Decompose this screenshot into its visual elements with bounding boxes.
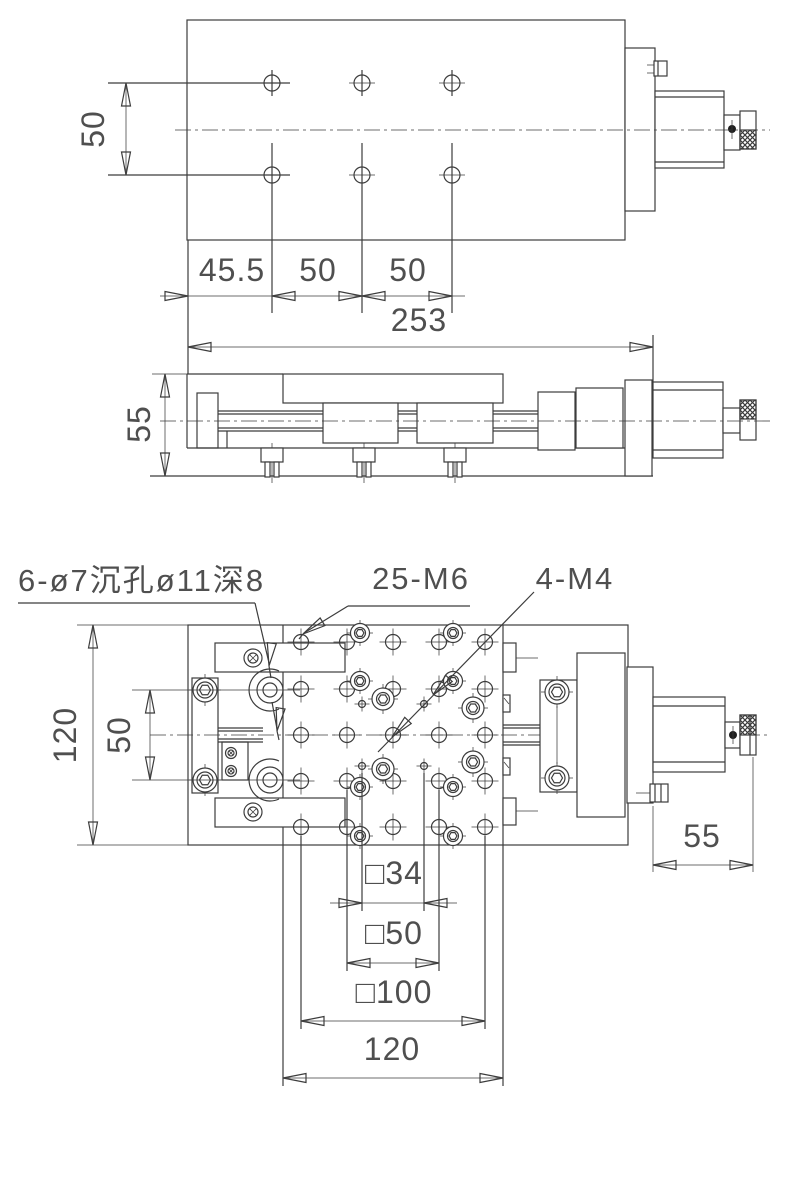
knurl-texture xyxy=(740,130,756,149)
micrometer-mount xyxy=(625,380,652,476)
right-tab-bottom xyxy=(503,798,516,825)
coupler-tab xyxy=(503,758,510,775)
clamp-bar-top xyxy=(215,643,345,672)
dim-text-50-a: 50 xyxy=(299,252,337,288)
label-m6: 25-M6 xyxy=(372,561,470,596)
right-block-b xyxy=(576,388,623,448)
dim-text-120-width: 120 xyxy=(364,1031,420,1067)
micrometer-head-bottom xyxy=(653,697,756,772)
right-tab-top xyxy=(503,643,516,672)
micrometer-barrel xyxy=(653,382,723,458)
cad-drawing-canvas: 50 45.5 50 50 253 xyxy=(0,0,800,1183)
side-view: 55 xyxy=(121,374,770,483)
carriage-block-2 xyxy=(417,403,493,443)
table-top-plate xyxy=(283,374,503,403)
dim-text-55-side: 55 xyxy=(121,405,157,443)
bar-screw xyxy=(244,803,262,821)
small-screw xyxy=(226,766,237,777)
mounting-flange xyxy=(625,48,655,211)
micrometer-head-side xyxy=(653,382,756,458)
micrometer-mount-block xyxy=(627,667,653,803)
knurl-texture xyxy=(740,715,756,735)
dim-text-50-b: 50 xyxy=(389,252,427,288)
dim-text-sq34: □34 xyxy=(365,855,423,891)
top-view: 50 45.5 50 50 253 xyxy=(75,20,770,382)
end-bracket xyxy=(197,393,218,448)
micrometer-head xyxy=(655,91,756,168)
carriage-block-1 xyxy=(323,403,398,443)
dim-text-120-height: 120 xyxy=(47,707,83,763)
dim-text-50-rows: 50 xyxy=(101,716,137,754)
bar-screw xyxy=(244,649,262,667)
knurl-texture xyxy=(740,400,756,419)
micrometer-spindle xyxy=(723,408,740,433)
linear-stage-drawing: 50 45.5 50 50 253 xyxy=(0,0,800,1183)
dim-text-sq100: □100 xyxy=(356,974,433,1010)
dim-text-45-5: 45.5 xyxy=(199,252,265,288)
clamp-bar-bottom xyxy=(215,798,345,827)
base-screws xyxy=(261,443,466,483)
micrometer-barrel xyxy=(655,91,724,168)
micrometer-flange-plate xyxy=(577,653,625,817)
dim-text-253: 253 xyxy=(391,302,447,338)
dim-text-row-spacing: 50 xyxy=(75,110,111,148)
small-screw xyxy=(226,748,237,759)
dim-text-sq50: □50 xyxy=(365,915,423,951)
label-counterbore: 6-ø7沉孔ø11深8 xyxy=(18,563,265,598)
label-m4: 4-M4 xyxy=(536,561,615,596)
micrometer-barrel xyxy=(653,697,725,772)
dim-text-55-bottom: 55 xyxy=(683,818,721,854)
bottom-view: 6-ø7沉孔ø11深8 25-M6 4-M4 120 50 □34 □50 xyxy=(18,561,770,1086)
